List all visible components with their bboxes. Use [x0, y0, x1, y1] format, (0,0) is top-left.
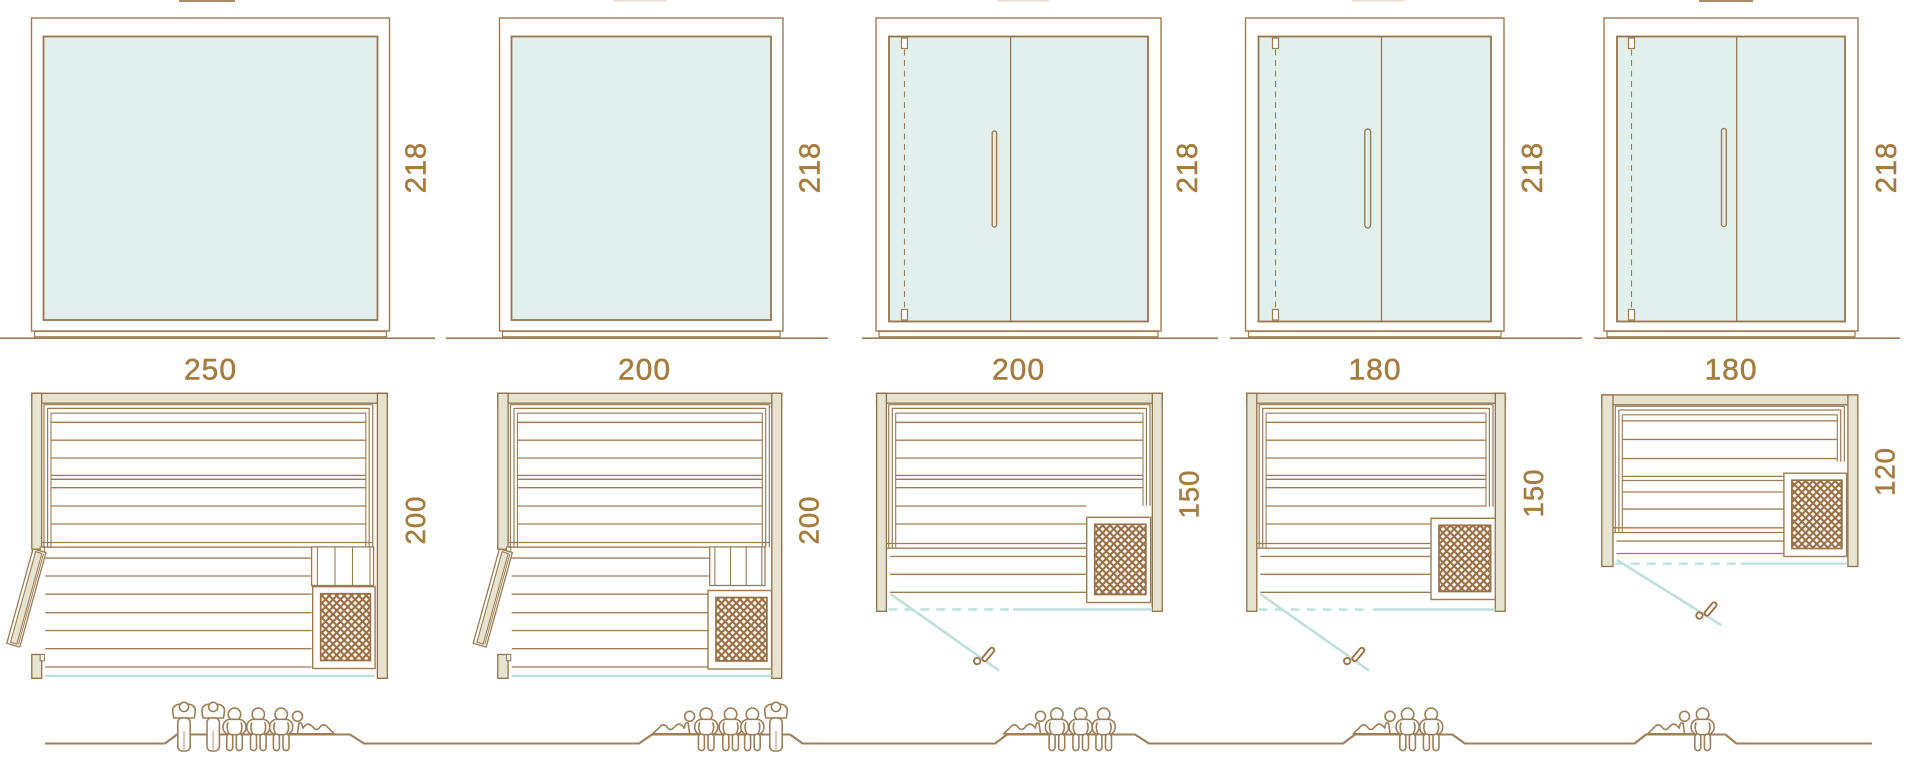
- svg-text:200: 200: [992, 354, 1045, 387]
- svg-text:200: 200: [400, 496, 431, 545]
- svg-text:218: 218: [401, 142, 433, 193]
- svg-text:218: 218: [1517, 142, 1549, 193]
- svg-text:200: 200: [794, 496, 825, 545]
- svg-text:218: 218: [795, 142, 827, 193]
- svg-text:150: 150: [1518, 469, 1549, 518]
- svg-text:218: 218: [1871, 142, 1903, 193]
- svg-text:150: 150: [1174, 470, 1205, 519]
- svg-text:218: 218: [1172, 142, 1204, 193]
- svg-text:250: 250: [184, 354, 237, 387]
- svg-text:200: 200: [618, 354, 671, 387]
- svg-text:120: 120: [1870, 447, 1901, 496]
- svg-text:180: 180: [1704, 354, 1757, 387]
- svg-text:180: 180: [1348, 354, 1401, 387]
